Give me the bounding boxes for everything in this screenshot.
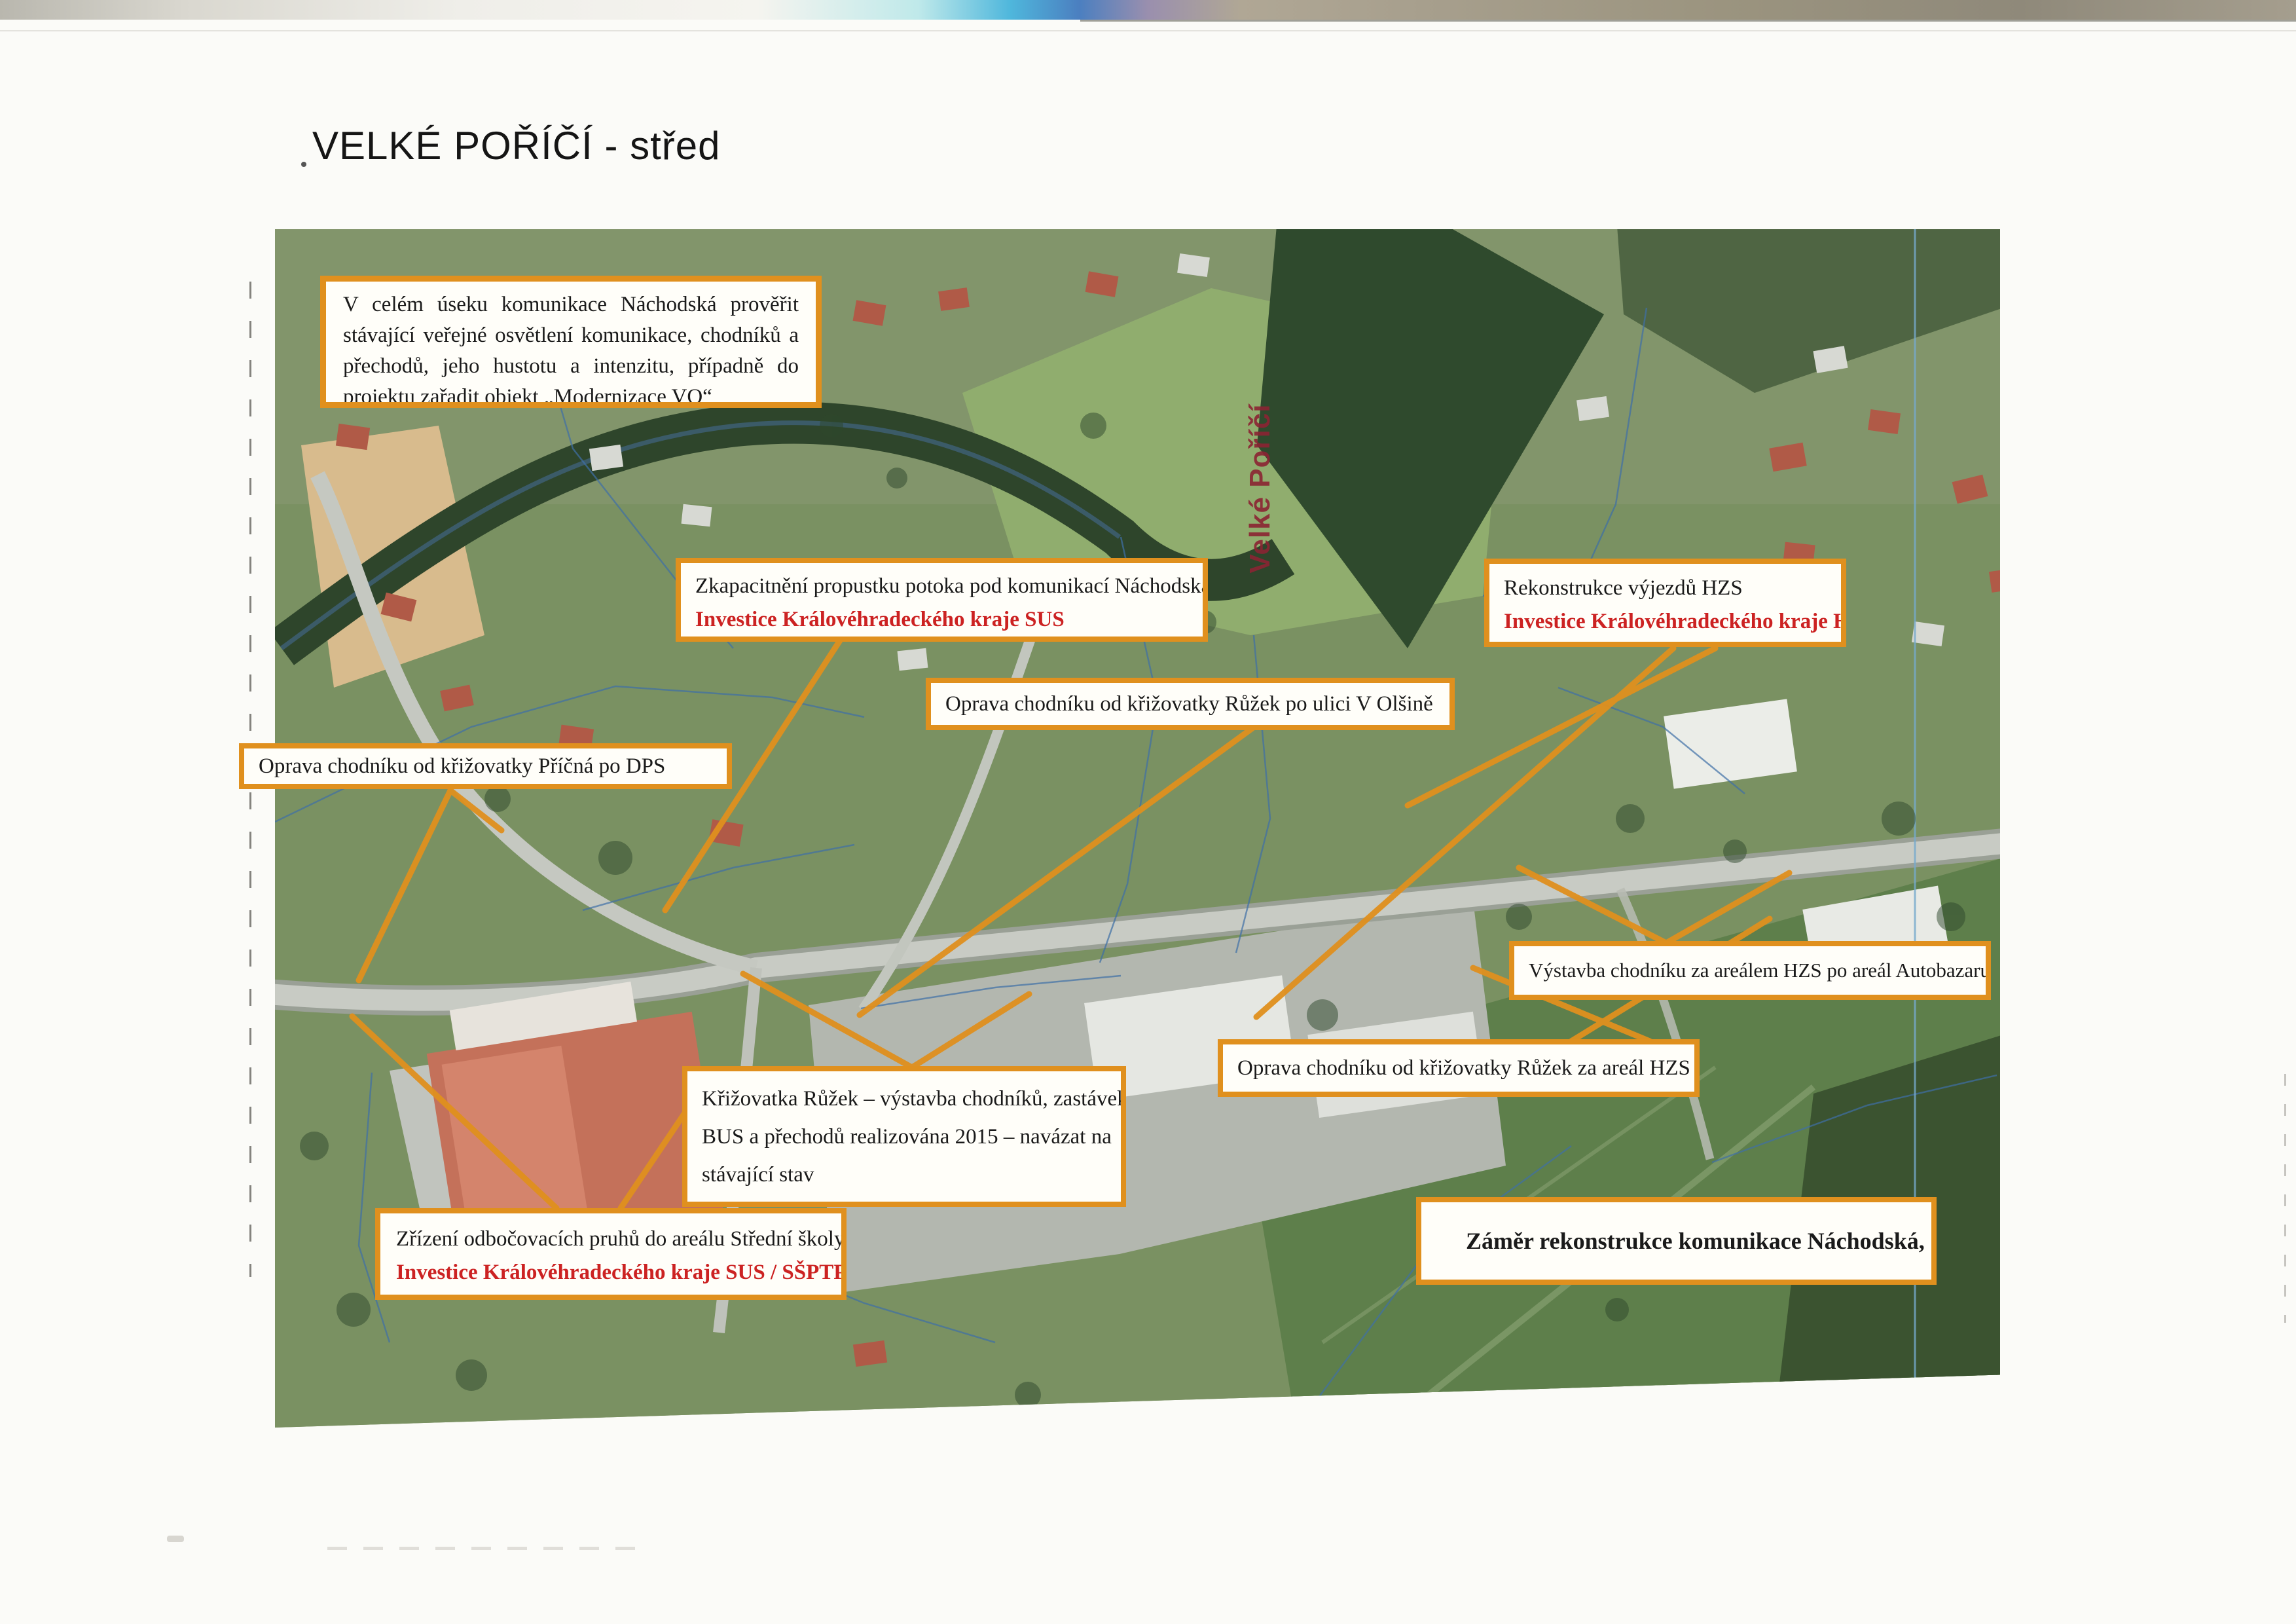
river-label: Velké Poříčí xyxy=(1244,390,1278,587)
page-title: VELKÉ POŘÍČÍ - střed xyxy=(312,123,721,168)
scan-top-strip-shadow xyxy=(1080,20,2296,22)
annotation-investor-text: Investice Královéhradeckého kraje SUS / … xyxy=(396,1256,826,1289)
annotation-box-sidewalk-autobazar: Výstavba chodníku za areálem HZS po areá… xyxy=(1509,941,1991,1000)
annotation-text: Výstavba chodníku za areálem HZS po areá… xyxy=(1529,959,1990,982)
annotation-text: Křižovatka Růžek – výstavba chodníků, za… xyxy=(702,1080,1106,1118)
annotation-box-sidewalk-hzs: Oprava chodníku od křižovatky Růžek za a… xyxy=(1218,1039,1700,1097)
annotation-text: V celém úseku komunikace Náchodská prově… xyxy=(343,293,799,408)
annotation-box-ruzek-junction: Křižovatka Růžek – výstavba chodníků, za… xyxy=(682,1066,1126,1207)
annotation-text: Oprava chodníku od křižovatky Růžek za a… xyxy=(1237,1056,1690,1080)
annotation-box-nachodska-plan: Záměr rekonstrukce komunikace Náchodská,… xyxy=(1416,1197,1937,1285)
annotation-box-sidewalk-pricna: Oprava chodníku od křižovatky Příčná po … xyxy=(239,743,732,789)
scan-top-strip xyxy=(0,0,2296,20)
scan-right-artifact xyxy=(2284,1074,2286,1323)
annotation-text: stávající stav xyxy=(702,1156,1106,1194)
scan-speck xyxy=(301,162,306,167)
annotation-text: Zkapacitnění propustku potoka pod komuni… xyxy=(695,570,1188,603)
annotation-box-hzs-exits: Rekonstrukce výjezdů HZS Investice Králo… xyxy=(1484,559,1846,647)
annotation-box-turning-lanes: Zřízení odbočovacích pruhů do areálu Stř… xyxy=(375,1208,847,1300)
annotation-investor-text: Investice Královéhradeckého kraje SUS xyxy=(695,603,1188,637)
annotation-text: Oprava chodníku od křižovatky Příčná po … xyxy=(259,754,665,779)
page: { "page": { "title": "VELKÉ POŘÍČÍ - stř… xyxy=(0,0,2296,1624)
annotation-box-culvert: Zkapacitnění propustku potoka pod komuni… xyxy=(676,558,1208,642)
annotation-text: Zřízení odbočovacích pruhů do areálu Stř… xyxy=(396,1223,826,1256)
scan-hairline xyxy=(0,30,2296,31)
annotation-text: BUS a přechodů realizována 2015 – naváza… xyxy=(702,1118,1106,1156)
annotation-text: Oprava chodníku od křižovatky Růžek po u… xyxy=(945,692,1433,716)
annotation-text: Rekonstrukce výjezdů HZS xyxy=(1504,572,1827,605)
annotation-investor-text: Investice Královéhradeckého kraje HZS xyxy=(1504,605,1827,638)
scan-bottom-mark xyxy=(167,1536,184,1542)
annotation-text: Záměr rekonstrukce komunikace Náchodská,… xyxy=(1466,1227,1937,1255)
scan-bottom-smudge xyxy=(327,1547,635,1550)
annotation-box-lighting: V celém úseku komunikace Náchodská prově… xyxy=(320,276,822,408)
annotation-box-sidewalk-olsina: Oprava chodníku od křižovatky Růžek po u… xyxy=(926,678,1455,730)
